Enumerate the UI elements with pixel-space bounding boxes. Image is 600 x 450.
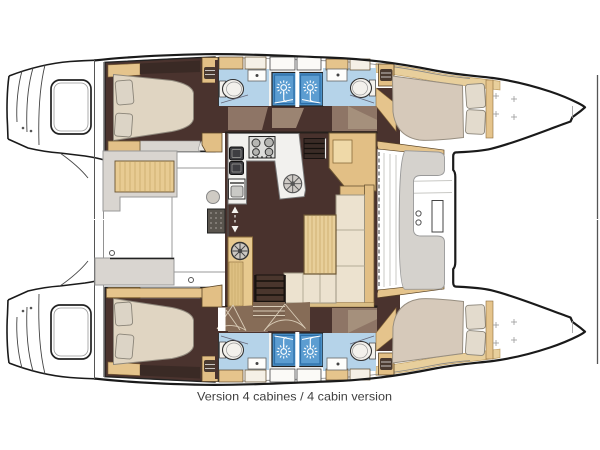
svg-text:Version 4 cabines / 4 cabin ve: Version 4 cabines / 4 cabin version	[197, 390, 392, 404]
